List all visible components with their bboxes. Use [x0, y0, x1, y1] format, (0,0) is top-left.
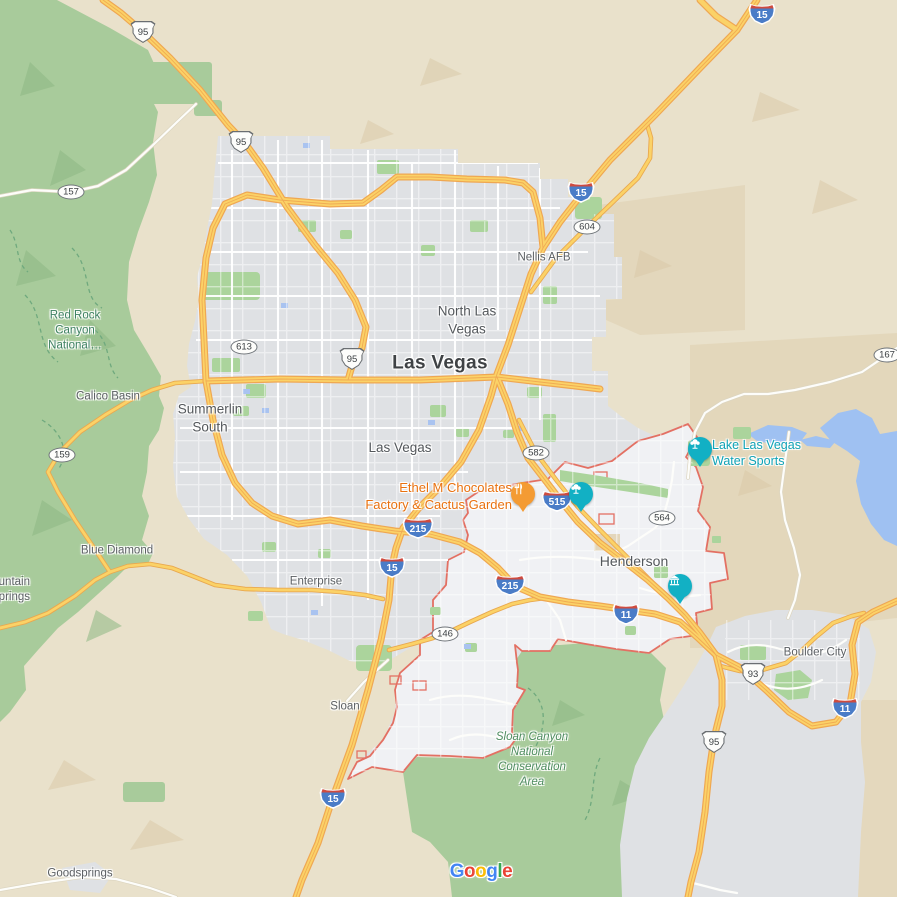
- map-layers: [0, 0, 897, 897]
- attraction-pin[interactable]: [569, 482, 593, 506]
- attraction-pin-lake-las-vegas[interactable]: [688, 437, 712, 461]
- state-route-157-shield: 157: [58, 185, 85, 200]
- map-canvas[interactable]: North Las Vegas Las Vegas Las Vegas Summ…: [0, 0, 897, 897]
- state-route-146-shield: 146: [432, 627, 459, 642]
- state-route-564-shield: 564: [649, 511, 676, 526]
- state-route-613-shield: 613: [231, 340, 258, 355]
- state-route-582-shield: 582: [523, 446, 550, 461]
- state-route-167-shield: 167: [874, 348, 897, 363]
- state-route-159-shield: 159: [49, 448, 76, 463]
- google-logo[interactable]: Google: [450, 861, 512, 883]
- museum-pin[interactable]: [668, 574, 692, 598]
- restaurant-pin[interactable]: [511, 482, 535, 506]
- state-route-604-shield: 604: [574, 220, 601, 235]
